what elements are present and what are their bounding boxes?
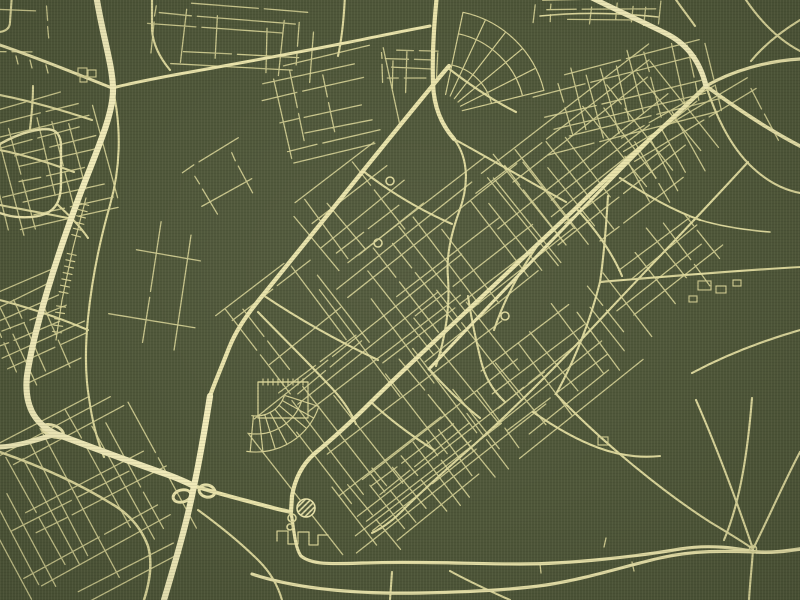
map-svg [0,0,800,600]
map-poster [0,0,800,600]
hatched-landmark-circle [297,499,315,517]
